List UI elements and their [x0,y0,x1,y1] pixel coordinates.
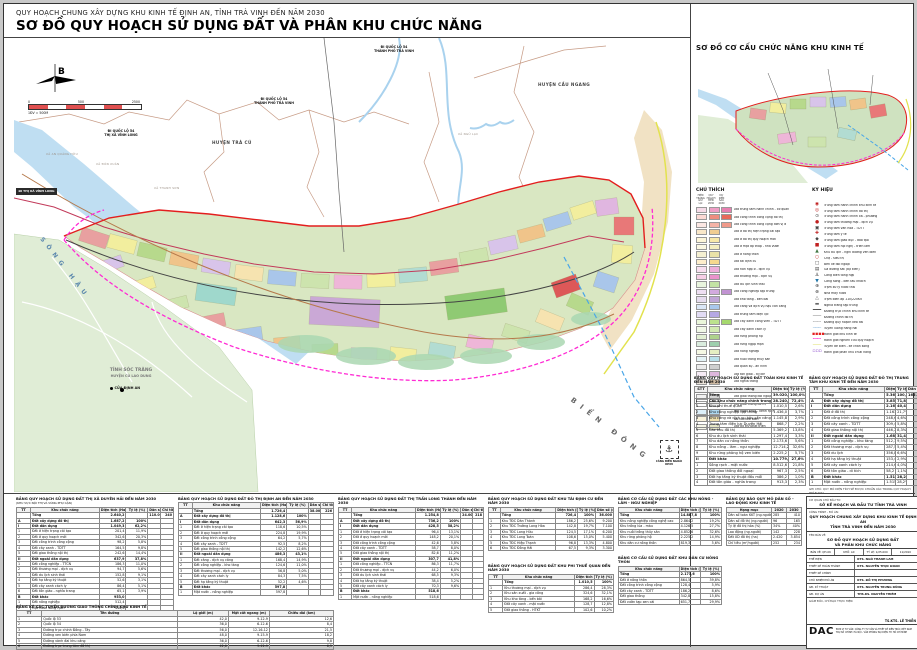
role-name: KTS. NGUYỄN TRUNG DŨNG [855,584,917,590]
legend-item-label: Đất nuôi trồng thủy sản [734,358,771,361]
swatch-existing [696,296,707,302]
role-label: GĐ. KỸ THUẬT [807,584,855,590]
legend-symbol-icon: ■ [812,244,822,249]
legend-column-heads: HIỆN TRẠNG GIỮ LẠIQUY HOẠCH ĐẾN 2030DỰ K… [696,195,808,205]
legend-symbol-label: Trung tâm thương mại - dịch vụ [824,221,873,224]
legend-symbol-label: Cảng biển tổng hợp [824,274,854,277]
legend-item: Đất cây xanh công viên - TDTT [696,319,808,325]
data-table: Hạng mục20202030Dân số toàn KKT (ng.ngườ… [726,507,802,546]
swatch-planned [709,349,720,355]
port-dot [110,387,113,390]
legend-symbol-label: Trạm xử lý nước thải [824,286,855,289]
role-row: THIẾT KẾ HOÀN THÀNH KTS. NGUYỄN THỤC ĐOA… [807,563,917,570]
table-row: 1Mặt nước - nông nghiệp597,8 [179,590,334,595]
swatch-existing [696,237,707,243]
legend-symbol-item: ▣ Trung tâm văn hóa - TDTT [812,227,917,232]
swatch-existing [696,326,707,332]
legend-item-label: Đất trung tâm hành chính - cơ quan [734,208,790,211]
table-kkt-landuse: BẢNG QUY HOẠCH SỬ DỤNG ĐẤT TOÀN KHU KINH… [694,376,806,486]
legend-item: Đất ở mật độ thấp - nhà vườn [696,244,808,250]
swatch-planned [709,341,720,347]
swatch-planned [709,244,720,250]
legend-symbol-item: ─── Đường chính đô thị [812,315,917,320]
legend-symbol-item: ▬ Nghĩa trang tập trung [812,303,917,308]
legend-item-label: Đất thương mại - dịch vụ [734,275,773,278]
table-row: 1Đất công nghiệp - kho tàng512,39,5% [810,439,917,445]
legend-symbol-icon: ⊗ [812,291,822,296]
title-block-owner: CƠ QUAN CHỦ ĐẦU TƯ: SỞ KẾ HOẠCH VÀ ĐẦU T… [807,497,917,509]
legend-symbol-icon: ⊙ [812,215,822,220]
scale-bar: 05002500 1ĐV = 500M [28,100,142,115]
legend-symbol-label: Tuyến luồng hàng hải [824,327,857,330]
legend-symbol-label: Ranh giới phân khu chức năng [824,351,871,354]
road-sign-vinh-long: ĐI THỊ XÃ VĨNH LONG [16,188,57,195]
legend-symbol-icon: ⚓ [812,274,822,279]
legend-symbol-icon: ╍╍╍ [812,338,822,343]
legend-symbol-label: Ga đường sắt (dự kiến) [824,268,860,271]
legend-item: Đất thương mại - dịch vụ [696,274,808,280]
legend-symbol-label: Nghĩa trang tập trung [824,304,858,307]
data-table: STTKhu chức năngDiện tích (Ha)Tỷ lệ (%)T… [694,386,806,486]
legend-item-label: Đất du lịch sinh thái [734,283,765,286]
role-name: KTS. NGUYỄN THỤC ĐOAN [855,563,917,569]
swatch-existing [696,244,707,250]
swatch-planned [709,304,720,310]
legend-item-label: Đất quân sự - an ninh [734,365,768,368]
legend-symbol-label: Bến xe đối ngoại [824,263,850,266]
footer-divider [4,493,915,494]
legend-symbol-item: ╌╌╌ Đường quy hoạch kéo dài [812,321,917,326]
table-row: 5Đất giao thông - HTKT102,610,2% [489,607,614,612]
legend-symbol-label: Nhà máy nước [824,292,846,295]
table-dinh-an: BẢNG QUY HOẠCH SỬ DỤNG ĐẤT ĐÔ THỊ ĐỊNH A… [178,497,334,596]
swatch-planned [709,364,720,370]
swatch-existing [696,349,707,355]
data-table: TTKhu chức năngDiện tích (Ha)Tỷ lệ (%)Tổ… [488,574,614,613]
swatch-planned [709,222,720,228]
road-callout-ql54-travinh-2: ĐI QUỐC LỘ 54THÀNH PHỐ TRÀ VINH [356,46,432,54]
swatch-future [721,289,732,295]
north-arrow: B [32,62,78,102]
legend-symbol-icon: ▪▪▪▪ [812,333,822,338]
label-xa-thanh-son: XÃ THANH SƠN [154,186,180,190]
swatch-existing [696,281,707,287]
swatch-existing [696,259,707,265]
legend-symbol-icon: ○ [812,256,822,261]
legend-item: Đất ở nông thôn [696,251,808,257]
legend-symbol-label: Trung tâm hành chính xã - phường [824,215,877,218]
role-row: CHỦ NHIỆM ĐỒ ÁN KTS. ĐỖ THỊ PHƯƠNG [807,577,917,584]
swatch-existing [696,311,707,317]
legend-symbol-item: ┄┄┄ Tuyến luồng hàng hải [812,327,917,332]
legend-symbol-icon: ▲ [812,250,822,255]
legend-item: Đất rừng ngập mặn [696,341,808,347]
data-table: Khu chức năngDiện tích (Ha)Tỷ lệ (%)Tổng… [618,507,722,546]
swatch-future [721,207,732,213]
legend-symbol-item: ✚ Trung tâm y tế [812,232,917,237]
drawing-title: SƠ ĐỒ QUY HOẠCH SỬ DỤNG ĐẤT VÀ PHÂN KHU … [16,18,676,34]
legend-symbol-item: ◆ Trung tâm giáo dục - đào tạo [812,238,917,243]
swatch-planned [709,259,720,265]
legend-symbol-item: ▤ Ga đường sắt (dự kiến) [812,268,917,273]
swatch-existing [696,266,707,272]
legend-symbol-icon: ▤ [812,268,822,273]
role-label: THIẾT KẾ CHÍNH [807,570,855,576]
swatch-existing [696,251,707,257]
legend-item-label: Đất ở nông thôn [734,253,759,256]
road-callout-ql54-travinh-1: ĐI QUỐC LỘ 54THÀNH PHỐ TRÀ VINH [238,98,310,106]
legend-item: Đất công trình công cộng đô thị [696,214,808,220]
legend-symbol-label: Trung tâm giáo dục - đào tạo [824,239,869,242]
legend-symbol-item: ─── Tuyến đê biển - kè chắn sóng [812,344,917,349]
legend-symbol-icon: ● [812,221,822,226]
offshore-port-label: CẢNG BIỂN NGOÀI KHƠI [652,460,686,466]
table-urban-landuse: BẢNG QUY HOẠCH SỬ DỤNG ĐẤT ĐÔ THỊ TRUNG … [809,376,917,495]
table-row: Khu dân cư nông thôn819,35,6% [619,540,722,545]
legend-item-label: Đất kho tàng - bến bãi [734,298,769,301]
legend-symbol-item: □ Bến xe đối ngoại [812,262,917,267]
data-table: TTKhu chức năngDiện tích (Ha)Tỷ lệ (%)Dâ… [16,507,174,611]
inset-map [698,55,916,183]
legend-symbol-label: Trạm biến áp 110/220KV [824,298,862,301]
label-huyen-cau-ngang: HUYỆN CẦU NGANG [538,82,590,87]
table-row: 6Đường trục trung tâm đô thị42,09-12-96,… [17,644,334,649]
legend-symbol-item: ━━━ Đường trục chính khu kinh tế [812,309,917,314]
table-duyen-hai: BẢNG QUY HOẠCH SỬ DỤNG ĐẤT THỊ XÃ DUYÊN … [16,497,174,611]
swatch-planned [709,274,720,280]
role-name [855,570,917,576]
legend-symbol-item: ○ Chợ - siêu thị [812,256,917,261]
swatch-future [721,319,732,325]
legend-item: Đất ở đô thị quy hoạch mới [696,237,808,243]
table-row: 6Khu TĐC Đông Hải67,59,3%3.300 [489,545,614,550]
swatch-planned [709,319,720,325]
legend-symbol-item: ▪▪▪▪ Ranh giới khu kinh tế [812,333,917,338]
title-block: CƠ QUAN CHỦ ĐẦU TƯ: SỞ KẾ HOẠCH VÀ ĐẦU T… [806,496,917,649]
firm-info: ĐƠN VỊ TƯ VẤN: CÔNG TY TƯ VẤN VÀ THIẾT K… [836,629,912,635]
legend-item: Đất kho tàng - bến bãi [696,296,808,302]
legend-symbol-label: Ranh giới khu kinh tế [824,333,857,336]
legend-symbol-item: ⊗ Nhà máy nước [812,291,917,296]
scale-bar-graphic [28,104,142,110]
table-row: 1Mặt nước - nông nghiệp1.515,428,2% [810,480,917,486]
legend-right-title: KÝ HIỆU [812,188,917,193]
legend-left-title: CHÚ THÍCH [696,188,808,193]
legend-symbol-item: ◉ Trung tâm hành chính khu kinh tế [812,203,917,208]
legend-symbol-item: ▲ Khu du lịch - nghỉ dưỡng ven biển [812,250,917,255]
role-name: THS.KS. NGUYỄN THIỀM [855,591,917,597]
north-arrow-icon: B [32,62,78,98]
title-block-roles: THỂ HIỆN KTS. NGÔ THANH LAM THIẾT KẾ HOÀ… [807,556,917,598]
legend-symbol-item: ⊙ Trung tâm hành chính xã - phường [812,215,917,220]
road-callout-ql54-vinhlong: ĐI QUỐC LỘ 54THỊ XÃ VĨNH LONG [88,130,154,138]
table-row: Chỉ tiêu (m²/người)252234 [727,540,802,545]
table-tai-dinh-cu: BẢNG QUY HOẠCH SỬ DỤNG ĐẤT KHU TÁI ĐỊNH … [488,497,614,551]
legend-item: Đất công trình công cộng đơn vị ở [696,222,808,228]
table-nong-lam-ngu: BẢNG CƠ CẤU SỬ DỤNG ĐẤT CÁC KHU NÔNG - L… [618,497,722,546]
legend-symbol-label: Tuyến đê biển - kè chắn sóng [824,345,869,348]
legend-symbol-label: Ranh giới nghiên cứu quy hoạch [824,339,874,342]
swatch-existing [696,364,707,370]
table-row: AĐất xây dựng đô thị3.853,871,8% [810,398,917,404]
legend-symbol-label: Đường quy hoạch kéo dài [824,321,863,324]
legend-symbol-label: Trung tâm hội nghị - triển lãm [824,245,870,248]
title-block-project: CÔNG TRÌNH - ĐỒ ÁN: QUY HOẠCH CHUNG XÂY … [807,509,917,531]
swatch-planned [709,237,720,243]
swatch-planned [709,214,720,220]
legend-symbol-label: Trung tâm y tế [824,233,847,236]
legend-item-label: Đất ở đô thị quy hoạch mới [734,238,776,241]
role-label: THỂ HIỆN [807,556,855,562]
director-name: TS.KTS. LÊ THIỀN [885,619,916,623]
legend-item: Đất tái định cư [696,259,808,265]
legend-item: Đất trung tâm điện lực [696,311,808,317]
title-block-director: GIÁM ĐỐC, CHỈ ĐẠO THỰC HIỆN: TS.KTS. LÊ … [807,598,917,625]
role-label: CHỦ NHIỆM ĐỒ ÁN [807,577,855,583]
legend-symbol-label: Trung tâm hành chính đô thị [824,210,868,213]
offshore-port-marker: ⚓ CẢNG BIỂN NGOÀI KHƠI [652,440,686,466]
legend-item-label: Đất cảng và dịch vụ hậu cần cảng [734,305,787,308]
data-table: TTKhu chức năngDiện tích (Ha)Tỷ lệ (%)Dâ… [178,502,334,595]
table-row: 4Đất tôn giáo - nghĩa trang913,32,3% [695,480,806,486]
legend-item: Đất du lịch sinh thái [696,281,808,287]
legend-item: Đất ở đô thị hiện trạng cải tạo [696,229,808,235]
legend-item-label: Đất công trình công cộng đơn vị ở [734,223,787,226]
swatch-existing [696,274,707,280]
legend-item-label: Đất công trình công cộng đô thị [734,216,783,219]
table-row: 1Mặt nước - nông nghiệp518,6 [339,594,484,599]
label-xa-ngu-lac: XÃ NGŨ LẠC [458,132,478,136]
data-table: TTKhu chức năngDiện tích (Ha)Tỷ lệ (%)Dâ… [488,507,614,552]
legend-right-list: ◉ Trung tâm hành chính khu kinh tế ◎ Tru… [812,203,917,355]
table-dan-cu-nong-thon: BẢNG CƠ CẤU SỬ DỤNG ĐẤT KHU DÂN CƯ NÔNG … [618,556,722,605]
role-row: THIẾT KẾ CHÍNH [807,570,917,577]
legend-item: Đất cảng và dịch vụ hậu cần cảng [696,304,808,310]
swatch-existing [696,289,707,295]
legend-item-label: Đất rừng ngập mặn [734,343,764,346]
legend-symbol-icon: ─── [812,315,822,320]
swatch-existing [696,304,707,310]
svg-text:B: B [58,67,65,77]
role-row: GĐ. DỰ ÁN THS.KS. NGUYỄN THIỀM [807,591,917,598]
legend-item: Đất công nghiệp tập trung [696,289,808,295]
swatch-planned [709,289,720,295]
main-map: B 05002500 1ĐV = 500M ĐI QUỐC LỘ 54THỊ X… [14,38,690,492]
swatch-planned [709,296,720,302]
legend-symbol-icon: △ [812,297,822,302]
legend-item: Đất hỗn hợp ở - dịch vụ [696,266,808,272]
legend-symbol-item: ⊕ Trạm xử lý nước thải [812,285,917,290]
swatch-planned [709,334,720,340]
sheet-header: QUY HOẠCH CHUNG XÂY DỰNG KHU KINH TẾ ĐỊN… [16,9,676,34]
legend-item: Đất cây xanh cách ly [696,326,808,332]
legend-item-label: Đất công nghiệp tập trung [734,290,775,293]
project-title: QUY HOẠCH CHUNG XÂY DỰNG KHU KINH TẾ ĐỊN… [16,9,676,17]
label-huyen-tra-cu: HUYỆN TRÀ CÚ [212,140,252,145]
swatch-existing [696,222,707,228]
inset-map-title: SƠ ĐỒ CƠ CẤU CHỨC NĂNG KHU KINH TẾ [696,44,917,52]
legend-symbol-label: Khu du lịch - nghỉ dưỡng ven biển [824,251,876,254]
legend-item-label: Đất cây xanh cách ly [734,328,766,331]
legend-symbol-icon: ┄┄┄ [812,327,822,332]
legend-item: Đất trung tâm hành chính - cơ quan [696,207,808,213]
swatch-planned [709,356,720,362]
label-xa-an-quang-huu: XÃ AN QUẢNG HỮU [46,152,78,156]
legend-symbol-label: Đường trục chính khu kinh tế [824,310,869,313]
table-row: 2Đất thương mại - dịch vụ287,55,4% [810,445,917,451]
title-block-firm: DAC ĐƠN VỊ TƯ VẤN: CÔNG TY TƯ VẤN VÀ THI… [807,625,917,639]
legend-symbol-icon: ▼ [812,280,822,285]
dac-logo: DAC [809,626,834,637]
legend-symbol-icon: ▫▫▫ [812,350,822,355]
swatch-existing [696,229,707,235]
table-phi-thue-quan: BẢNG QUY HOẠCH SỬ DỤNG ĐẤT KHU PHI THUẾ … [488,564,614,613]
anchor-icon: ⚓ [660,440,679,459]
table-row: IIĐất ngoài dân dụng1.686,431,4% [810,433,917,439]
legend-symbol-icon: ─── [812,344,822,349]
legend-symbol-icon: ✚ [812,232,822,237]
swatch-planned [709,311,720,317]
data-table: TTKhu chức năngDiện tích (Ha)Tỷ lệ (%)Dâ… [338,507,484,600]
map-sheet: QUY HOẠCH CHUNG XÂY DỰNG KHU KINH TẾ ĐỊN… [3,3,914,646]
table-long-thanh: BẢNG QUY HOẠCH SỬ DỤNG ĐẤT THỊ TRẤN LONG… [338,497,484,600]
data-table: Khu chức năngDiện tích (Ha)Tỷ lệ (%)Tổng… [618,566,722,605]
swatch-existing [696,334,707,340]
swatch-existing [696,341,707,347]
swatch-planned [709,326,720,332]
legend-item-label: Đất ở mật độ thấp - nhà vườn [734,245,780,248]
role-name: KTS. ĐỖ THỊ PHƯƠNG [855,577,917,583]
legend-item: Đất nuôi trồng thủy sản [696,356,808,362]
legend-item-label: Đất nông nghiệp [734,350,760,353]
panel-divider [690,4,691,647]
legend-item-label: Đất tái định cư [734,260,757,263]
legend-item-label: Đất trung tâm điện lực [734,313,769,316]
legend-item: Đất rừng phòng hộ [696,334,808,340]
swatch-existing [696,319,707,325]
legend-symbol-item: ▫▫▫ Ranh giới phân khu chức năng [812,350,917,355]
legend-symbol-icon: ◎ [812,209,822,214]
role-row: GĐ. KỸ THUẬT KTS. NGUYỄN TRUNG DŨNG [807,584,917,591]
role-label: GĐ. DỰ ÁN [807,591,855,597]
legend-item-label: Đất cây xanh công viên - TDTT [734,320,782,323]
legend-item: Đất quân sự - an ninh [696,364,808,370]
legend-symbol-label: Cảng sông - bến tàu khách [824,280,866,283]
legend-symbol-item: ⚓ Cảng biển tổng hợp [812,274,917,279]
label-cua-dinh-an: CỬA ĐỊNH AN [110,386,140,390]
table-giao-thong: BẢNG KÊ CÁC TUYẾN ĐƯỜNG GIAO THÔNG CHÍNH… [16,605,334,650]
swatch-future [721,214,732,220]
role-row: THỂ HIỆN KTS. NGÔ THANH LAM [807,556,917,563]
legend-symbol-label: Trung tâm hành chính khu kinh tế [824,204,876,207]
inset-map-canvas [698,55,916,183]
legend-item-label: Đất rừng phòng hộ [734,335,763,338]
legend-item: Đất nông nghiệp [696,349,808,355]
legend-symbol-label: Trung tâm văn hóa - TDTT [824,227,864,230]
legend-symbol-item: ▼ Cảng sông - bến tàu khách [812,280,917,285]
swatch-planned [709,281,720,287]
legend-symbol-icon: □ [812,262,822,267]
legend-symbol-icon: ◉ [812,203,822,208]
legend-symbol-icon: ━━━ [812,309,822,314]
swatch-existing [696,214,707,220]
swatch-planned [709,266,720,272]
legend-symbol-icon: ◆ [812,238,822,243]
legend-symbol-item: ◎ Trung tâm hành chính đô thị [812,209,917,214]
legend-symbol-icon: ▬ [812,303,822,308]
title-block-drawing: TÊN BẢN VẼ: SƠ ĐỒ QUY HOẠCH SỬ DỤNG ĐẤT … [807,532,917,549]
label-tinh-soc-trang: TỈNH SÓC TRĂNG HUYỆN CÙ LAO DUNG [76,368,186,378]
legend-symbol-item: ╍╍╍ Ranh giới nghiên cứu quy hoạch [812,338,917,343]
swatch-future [721,222,732,228]
legend-item-label: Đất hỗn hợp ở - dịch vụ [734,268,770,271]
legend-item-label: Đất ở đô thị hiện trạng cải tạo [734,230,781,233]
table-dan-so: BẢNG DỰ BÁO QUY MÔ DÂN SỐ - LAO ĐỘNG KHU… [726,497,802,546]
swatch-existing [696,356,707,362]
role-name: KTS. NGÔ THANH LAM [855,556,917,562]
swatch-planned [709,207,720,213]
swatch-planned [709,229,720,235]
table-row: Đất vườn tạp xen cài651,729,9% [619,599,722,604]
scale-note: 1ĐV = 500M [28,111,142,115]
legend-symbol-label: Đường chính đô thị [824,316,853,319]
table-row: 2Đất công trình công cộng248,64,6% [810,416,917,422]
data-table: TTTên đườngLộ giới (m)Mặt cắt ngang (m)C… [16,610,334,649]
label-xa-don-xuan: XÃ ĐÔN XUÂN [96,162,119,166]
data-table: TTKhu chức năngDiện tích (Ha)Tỷ lệ (%)Dâ… [809,386,917,486]
legend-symbol-icon: ⊕ [812,285,822,290]
legend-symbol-icon: ╌╌╌ [812,321,822,326]
legend-symbol-label: Chợ - siêu thị [824,257,844,260]
swatch-planned [709,251,720,257]
title-block-meta: BẢN VẼ: QH-06KHỔ: A0 TỶ LỆ: 1/25.00011/2… [807,549,917,556]
legend-symbol-item: △ Trạm biến áp 110/220KV [812,297,917,302]
legend-symbols: KÝ HIỆU ◉ Trung tâm hành chính khu kinh … [812,188,917,356]
legend-symbol-item: ● Trung tâm thương mại - dịch vụ [812,221,917,226]
swatch-existing [696,207,707,213]
role-label: THIẾT KẾ HOÀN THÀNH [807,563,855,569]
legend-symbol-item: ■ Trung tâm hội nghị - triển lãm [812,244,917,249]
